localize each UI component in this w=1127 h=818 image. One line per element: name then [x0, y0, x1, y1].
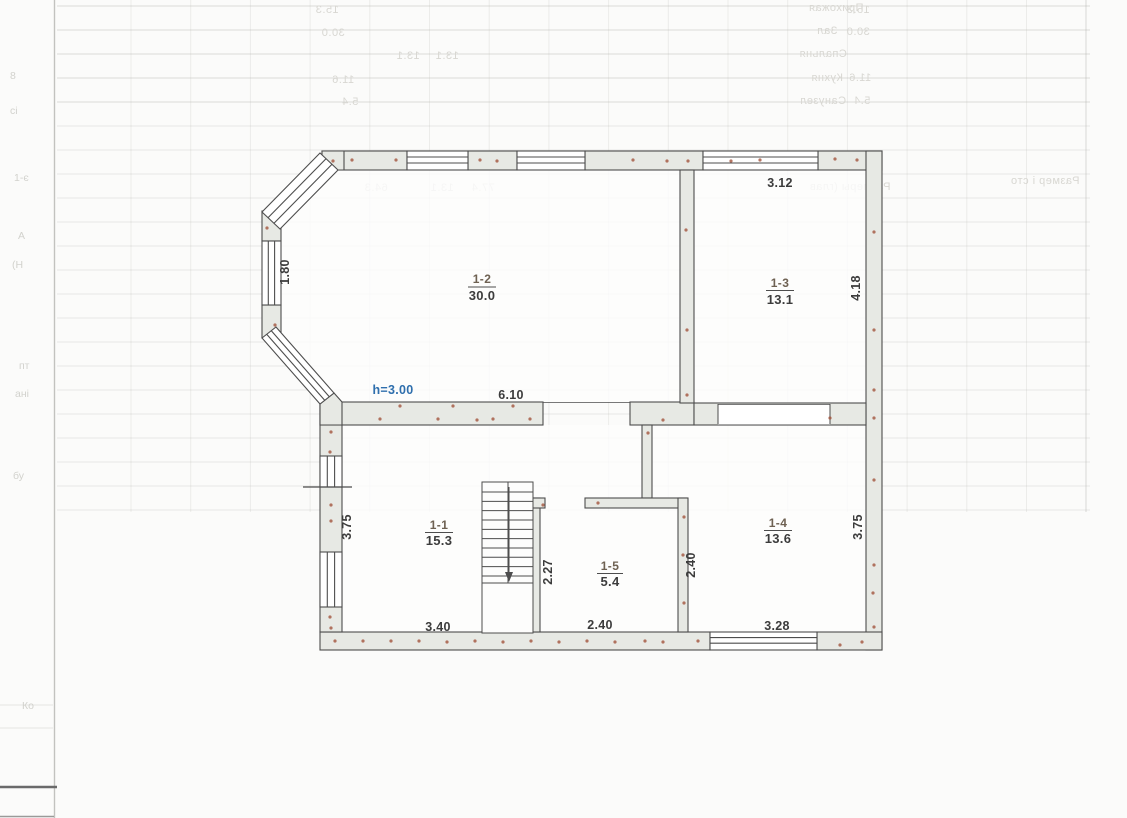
- scan-dot: [378, 417, 381, 420]
- bleed-through-ghost-text: Размер і сто: [1011, 175, 1080, 187]
- margin-mark: 1-є: [14, 172, 29, 184]
- scan-dot: [685, 328, 688, 331]
- scan-dot: [596, 501, 599, 504]
- scan-dot: [685, 393, 688, 396]
- scan-dot: [328, 450, 331, 453]
- scan-dot: [511, 404, 514, 407]
- room-1-1-number: 1-1: [430, 518, 449, 532]
- bleed-through-ghost-text: Зал: [817, 25, 838, 37]
- dim-room-1-2-width: 6.10: [498, 388, 524, 402]
- top-wall-segment: [468, 151, 517, 170]
- lower-rooms-floor: [342, 425, 866, 632]
- bleed-through-ghost-text: 5.4: [854, 95, 871, 107]
- scan-dot: [585, 639, 588, 642]
- room-1-4-number: 1-4: [769, 516, 788, 530]
- dim-room-1-5-height: 2.27: [541, 559, 555, 585]
- dim-room-1-4-height-right: 3.75: [851, 514, 865, 540]
- scan-dot: [855, 158, 858, 161]
- dim-room-1-4-width: 3.28: [764, 619, 790, 633]
- margin-mark: пт: [19, 360, 30, 372]
- scan-dot: [646, 431, 649, 434]
- scan-dot: [265, 226, 268, 229]
- scan-dot: [872, 416, 875, 419]
- scan-dot: [833, 157, 836, 160]
- doorway-room-1-3: [718, 404, 830, 425]
- room-1-5-top-wall: [585, 498, 687, 508]
- scan-dot: [661, 640, 664, 643]
- margin-mark: сі: [10, 105, 18, 117]
- scan-dot: [491, 417, 494, 420]
- window: [710, 632, 817, 650]
- bleed-through-ghost-text: Санузел: [800, 95, 846, 107]
- bleed-through-ghost-text: Спальня: [799, 48, 847, 60]
- bottom-wall-segment: [320, 632, 710, 650]
- bleed-through-ghost-text: 15.3: [315, 4, 338, 16]
- dim-room-1-3-height: 4.18: [849, 275, 863, 301]
- scan-dot: [473, 639, 476, 642]
- dim-room-1-3-width: 3.12: [767, 176, 793, 190]
- bleed-through-ghost-text: 11.6: [332, 74, 355, 86]
- scan-dot: [350, 158, 353, 161]
- room-1-5-area: 5.4: [601, 574, 620, 589]
- page-margin-marks: 8сі1-єА(НптанібуКо: [10, 70, 34, 712]
- scan-dot: [872, 563, 875, 566]
- scan-dot: [501, 640, 504, 643]
- scan-dot: [872, 388, 875, 391]
- scan-dot: [872, 625, 875, 628]
- scan-dot: [478, 158, 481, 161]
- scan-dot: [394, 158, 397, 161]
- scan-dot: [631, 158, 634, 161]
- room-1-1-area: 15.3: [426, 533, 453, 548]
- scan-dot: [665, 159, 668, 162]
- staircase: [482, 482, 533, 633]
- scan-dot: [361, 639, 364, 642]
- bleed-through-ghost-text: 13.1: [435, 50, 458, 62]
- bleed-through-ghost-text: 30.0: [846, 26, 869, 38]
- scan-dot: [541, 503, 544, 506]
- window: [320, 552, 342, 607]
- scan-dot: [436, 417, 439, 420]
- middle-wall-segment: [320, 402, 543, 425]
- scan-dot: [838, 643, 841, 646]
- scan-dot: [872, 478, 875, 481]
- scan-dot: [828, 416, 831, 419]
- middle-wall-segment: [630, 402, 694, 425]
- room-1-4-area: 13.6: [765, 531, 792, 546]
- scan-dot: [475, 418, 478, 421]
- scan-dot: [273, 323, 276, 326]
- margin-mark: Ко: [22, 700, 34, 712]
- scan-dot: [331, 159, 334, 162]
- room-1-2-area: 30.0: [469, 288, 496, 303]
- bottom-wall-segment: [817, 632, 882, 650]
- scan-dot: [557, 640, 560, 643]
- scan-dot: [328, 615, 331, 618]
- scan-dot: [860, 640, 863, 643]
- dim-room-1-1-height: 3.75: [340, 514, 354, 540]
- scan-dot: [417, 639, 420, 642]
- room-floors: [281, 170, 866, 632]
- bleed-through-ghost-text: 5.4: [342, 96, 359, 108]
- dim-bay-window: 1.80: [278, 259, 292, 285]
- bleed-through-ghost-text: 13.1: [396, 50, 419, 62]
- page-edges: [0, 0, 57, 818]
- scan-dot: [389, 639, 392, 642]
- room-1-5-number: 1-5: [601, 559, 620, 573]
- margin-mark: (Н: [12, 259, 23, 271]
- room-1-2-floor: [281, 170, 680, 402]
- scan-dot: [495, 159, 498, 162]
- partition-1-2-1-3: [680, 170, 694, 403]
- scan-dot: [696, 639, 699, 642]
- ceiling-height-note: h=3.00: [372, 383, 413, 397]
- scan-dot: [729, 159, 732, 162]
- scan-dot: [872, 328, 875, 331]
- room-1-3-area: 13.1: [767, 292, 794, 307]
- scan-dot: [529, 639, 532, 642]
- scan-dot: [872, 230, 875, 233]
- right-exterior-wall: [866, 151, 882, 650]
- bleed-through-ghost-text: 15.3: [846, 4, 869, 16]
- scan-dot: [398, 404, 401, 407]
- scan-dot: [329, 430, 332, 433]
- scanned-document-page: Прихожая15.315.3Зал30.030.0Спальня13.113…: [0, 0, 1127, 818]
- window: [517, 151, 585, 170]
- scan-dot: [613, 640, 616, 643]
- window: [407, 151, 468, 170]
- top-wall-segment: [585, 151, 703, 170]
- floor-plan-drawing: Прихожая15.315.3Зал30.030.0Спальня13.113…: [0, 0, 1127, 818]
- scan-dot: [684, 228, 687, 231]
- room-1-3-number: 1-3: [771, 276, 790, 290]
- scan-dot: [643, 639, 646, 642]
- scan-dot: [682, 601, 685, 604]
- scan-dot: [329, 519, 332, 522]
- margin-mark: 8: [10, 70, 16, 82]
- room-1-2-number: 1-2: [473, 272, 492, 286]
- bleed-through-ghost-text: Кухня: [811, 72, 843, 84]
- scan-dot: [445, 640, 448, 643]
- scan-dot: [758, 158, 761, 161]
- dim-room-1-4-height-left: 2.40: [684, 552, 698, 578]
- scan-dot: [682, 515, 685, 518]
- dim-room-1-5-width: 2.40: [587, 618, 613, 632]
- scan-dot: [329, 503, 332, 506]
- window: [320, 456, 342, 487]
- margin-mark: бу: [13, 470, 25, 482]
- scan-dot: [871, 591, 874, 594]
- scan-dot: [451, 404, 454, 407]
- bleed-through-ghost-text: 11.6: [849, 72, 872, 84]
- margin-mark: ані: [15, 388, 29, 400]
- scan-dot: [686, 159, 689, 162]
- dim-room-1-1-width: 3.40: [425, 620, 451, 634]
- hall-partition: [642, 425, 652, 498]
- scan-dot: [528, 417, 531, 420]
- scan-dot: [661, 418, 664, 421]
- bleed-through-ghost-text: 30.0: [321, 27, 344, 39]
- scan-dot: [333, 639, 336, 642]
- margin-mark: А: [18, 230, 25, 242]
- scan-dot: [329, 626, 332, 629]
